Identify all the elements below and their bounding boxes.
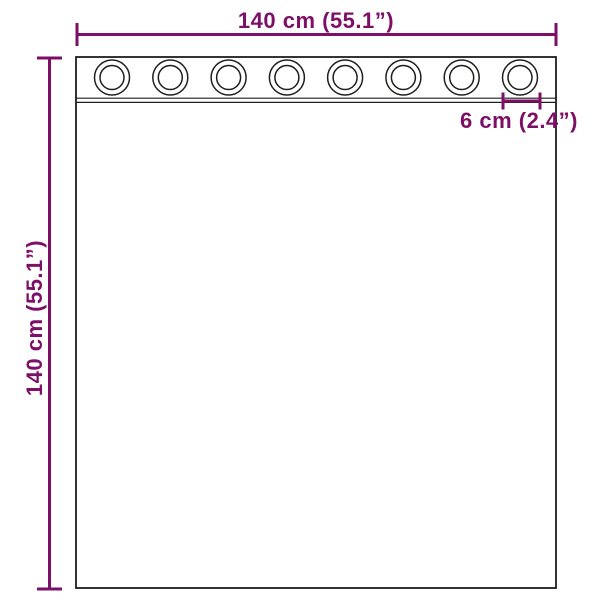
product-dimension-diagram: 140 cm (55.1”) 140 cm (55.1”) 6 cm (2.4”… (0, 0, 600, 600)
width-dimension-label: 140 cm (55.1”) (238, 8, 394, 33)
grommet-2-icon (153, 60, 188, 95)
height-dimension-label: 140 cm (55.1”) (22, 240, 47, 396)
grommet-3-icon (211, 60, 246, 95)
grommet-8-icon (503, 60, 538, 95)
grommet-7-icon (444, 60, 479, 95)
grommet-6-icon (386, 60, 421, 95)
curtain-outline (76, 57, 556, 588)
grommet-4-icon (269, 60, 304, 95)
grommet-5-icon (328, 60, 363, 95)
curtain-panel (76, 57, 556, 588)
grommet-1-icon (95, 60, 130, 95)
curtain-diagram-canvas: 140 cm (55.1”) 140 cm (55.1”) 6 cm (2.4”… (0, 0, 600, 600)
grommet-dimension-label: 6 cm (2.4”) (460, 108, 578, 133)
